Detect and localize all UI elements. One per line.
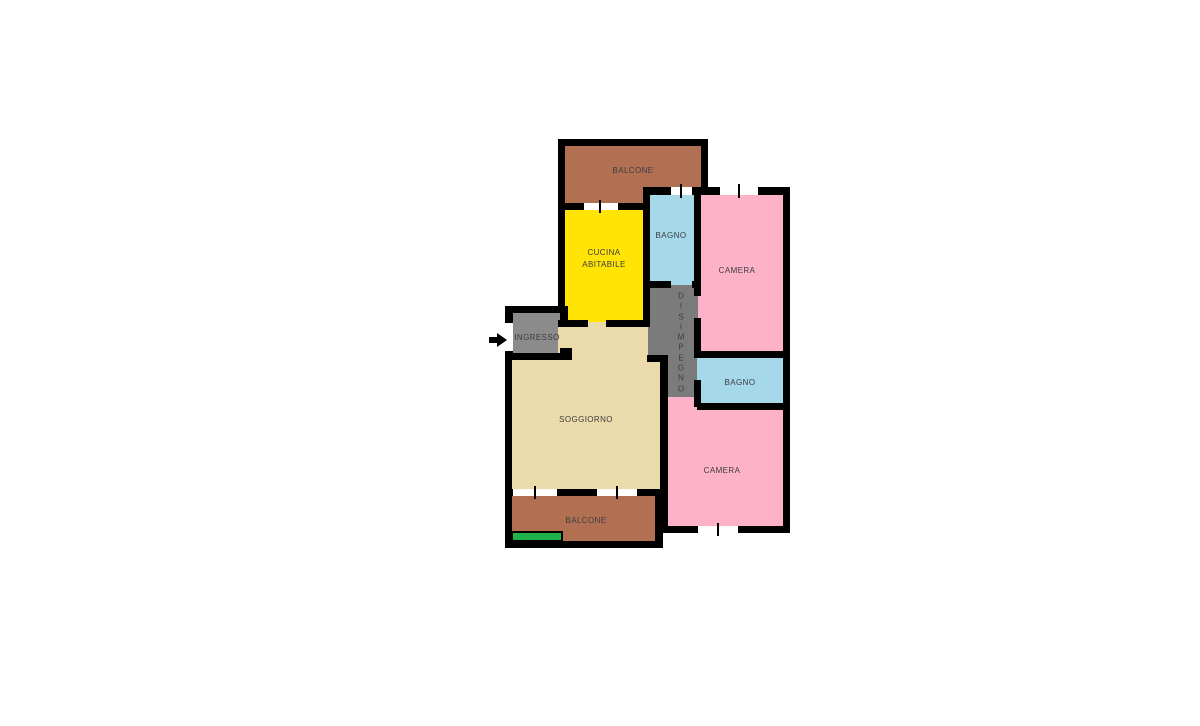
- wall-segment: [660, 355, 668, 533]
- window-tick: [534, 486, 536, 499]
- room-label-ingresso: INGRESSO: [514, 332, 559, 344]
- wall-segment: [505, 306, 568, 313]
- entry-arrow-icon: [497, 333, 507, 347]
- wall-segment: [643, 187, 790, 195]
- room-label-camera-top: CAMERA: [719, 265, 756, 277]
- wall-segment: [558, 320, 588, 327]
- wall-segment: [560, 348, 572, 360]
- window-tick: [680, 184, 682, 198]
- room-fill-disimpegno: [648, 285, 698, 358]
- wall-segment: [694, 351, 783, 358]
- wall-segment: [505, 353, 512, 496]
- room-label-disimpegno: D I S I M P E G N O: [678, 292, 685, 395]
- wall-segment: [692, 281, 701, 288]
- room-label-soggiorno: SOGGIORNO: [559, 414, 613, 426]
- window-tick: [616, 486, 618, 499]
- wall-segment: [558, 139, 708, 146]
- window-tick: [717, 523, 719, 536]
- room-label-camera-bottom: CAMERA: [704, 465, 741, 477]
- floorplan-canvas: BALCONECUCINA ABITABILEBAGNOCAMERAINGRES…: [0, 0, 1200, 726]
- room-label-bagno-bottom: BAGNO: [725, 377, 756, 389]
- window-gap: [584, 203, 618, 210]
- wall-segment: [505, 541, 663, 548]
- wall-segment: [558, 139, 565, 313]
- wall-segment: [694, 187, 701, 296]
- wall-segment: [643, 187, 650, 327]
- room-label-cucina: CUCINA ABITABILE: [582, 247, 625, 271]
- green-mat: [511, 531, 563, 542]
- room-fill-camera-bottom: [664, 397, 786, 529]
- room-label-balcone-bottom: BALCONE: [565, 515, 606, 527]
- room-label-bagno-top: BAGNO: [656, 230, 687, 242]
- wall-segment: [697, 403, 783, 410]
- window-tick: [599, 200, 601, 213]
- wall-segment: [783, 187, 790, 533]
- wall-segment: [643, 281, 671, 288]
- room-label-balcone-top: BALCONE: [612, 165, 653, 177]
- window-tick: [738, 184, 740, 198]
